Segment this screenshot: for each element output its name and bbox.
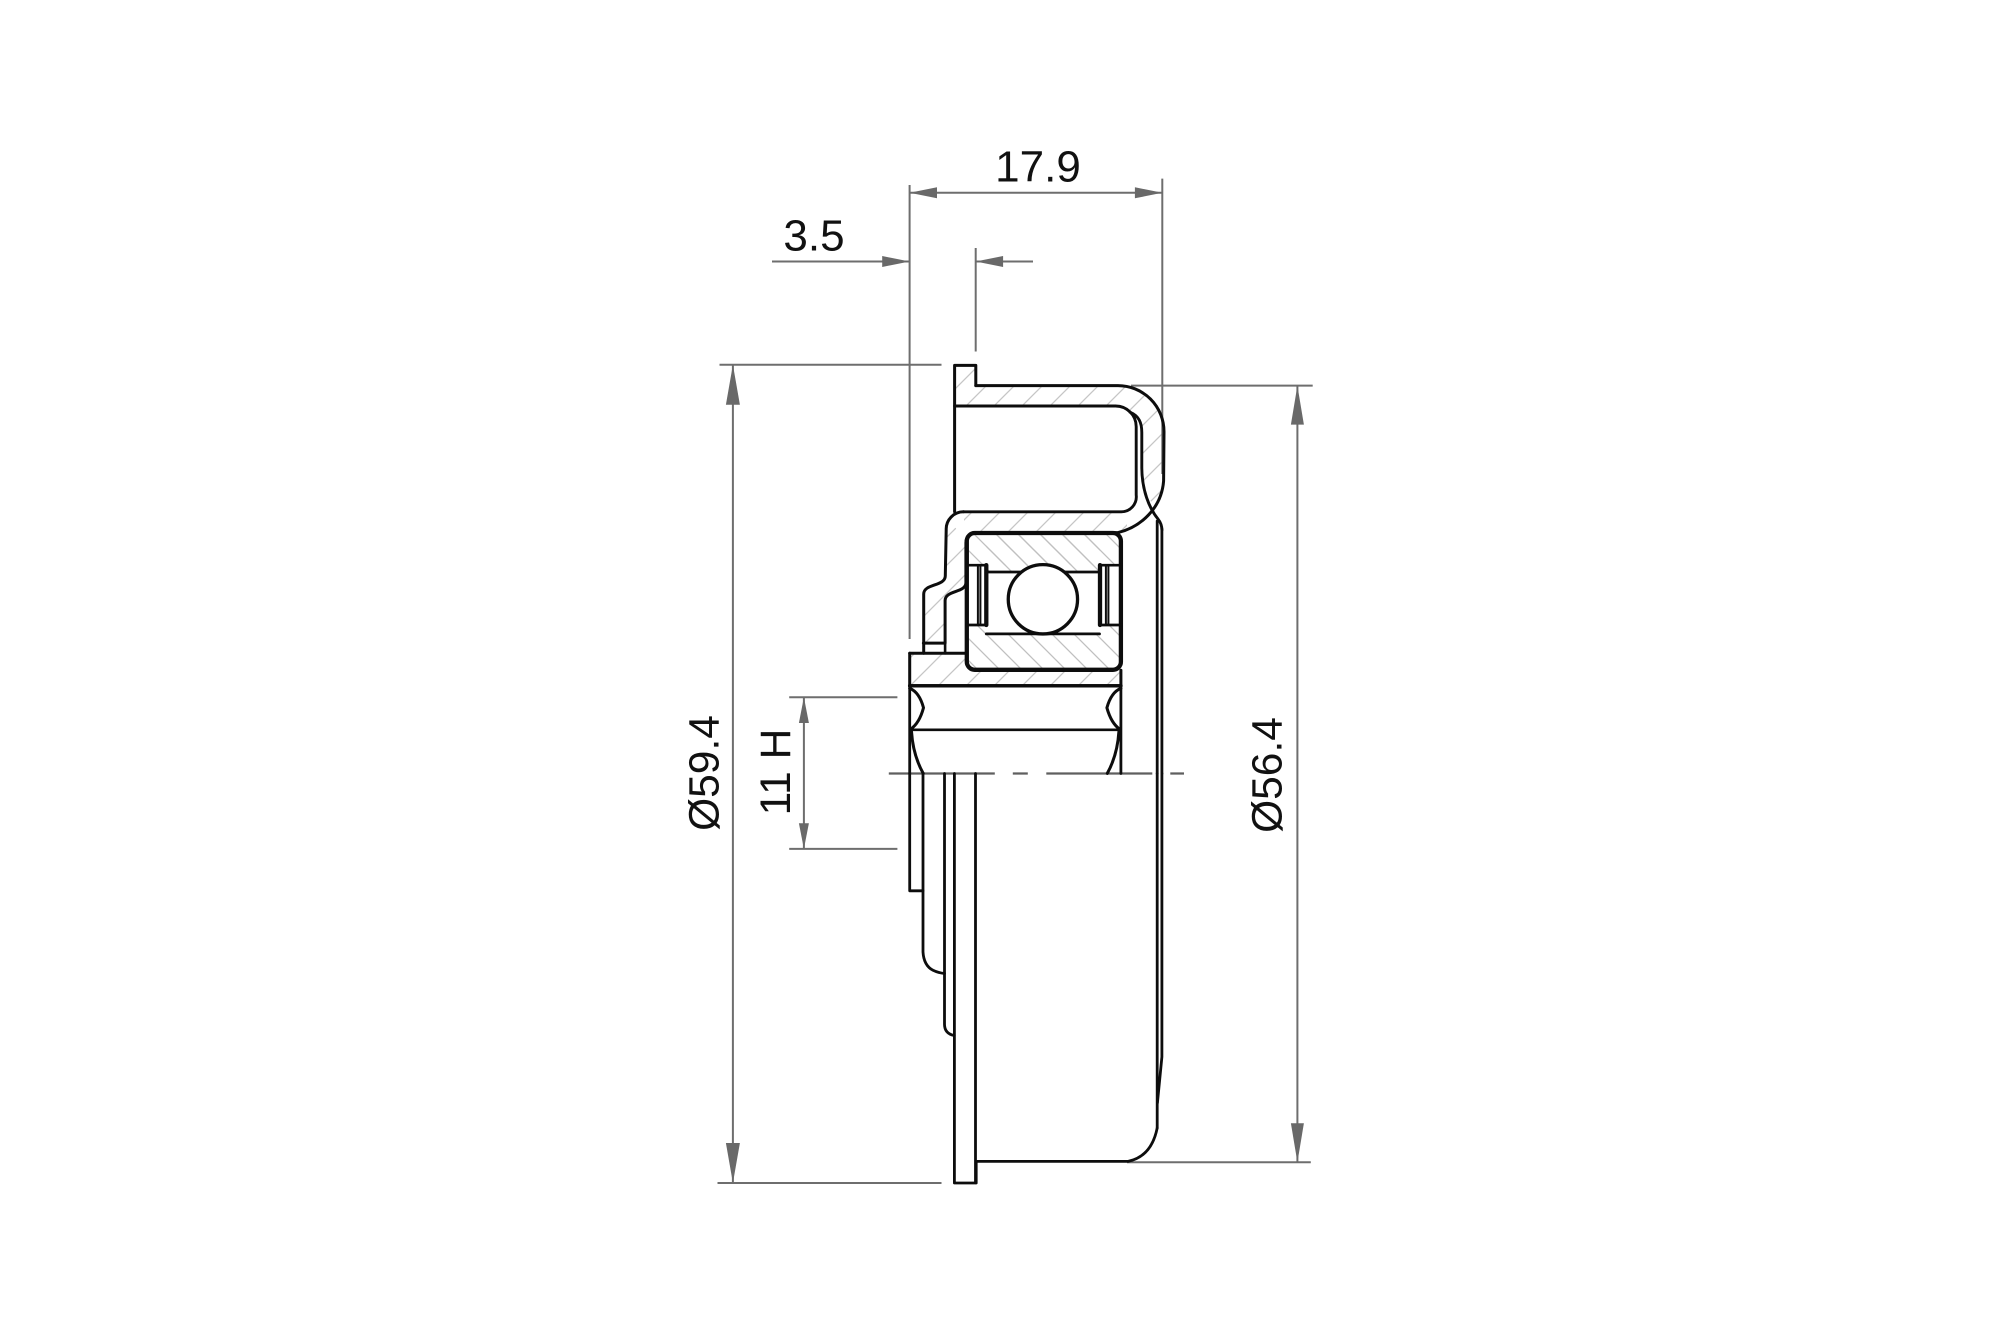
svg-text:11 H: 11 H <box>753 729 800 816</box>
svg-text:Ø56.4: Ø56.4 <box>1245 717 1292 833</box>
svg-text:17.9: 17.9 <box>995 143 1081 192</box>
svg-text:Ø59.4: Ø59.4 <box>682 715 729 831</box>
svg-text:3.5: 3.5 <box>783 212 844 261</box>
